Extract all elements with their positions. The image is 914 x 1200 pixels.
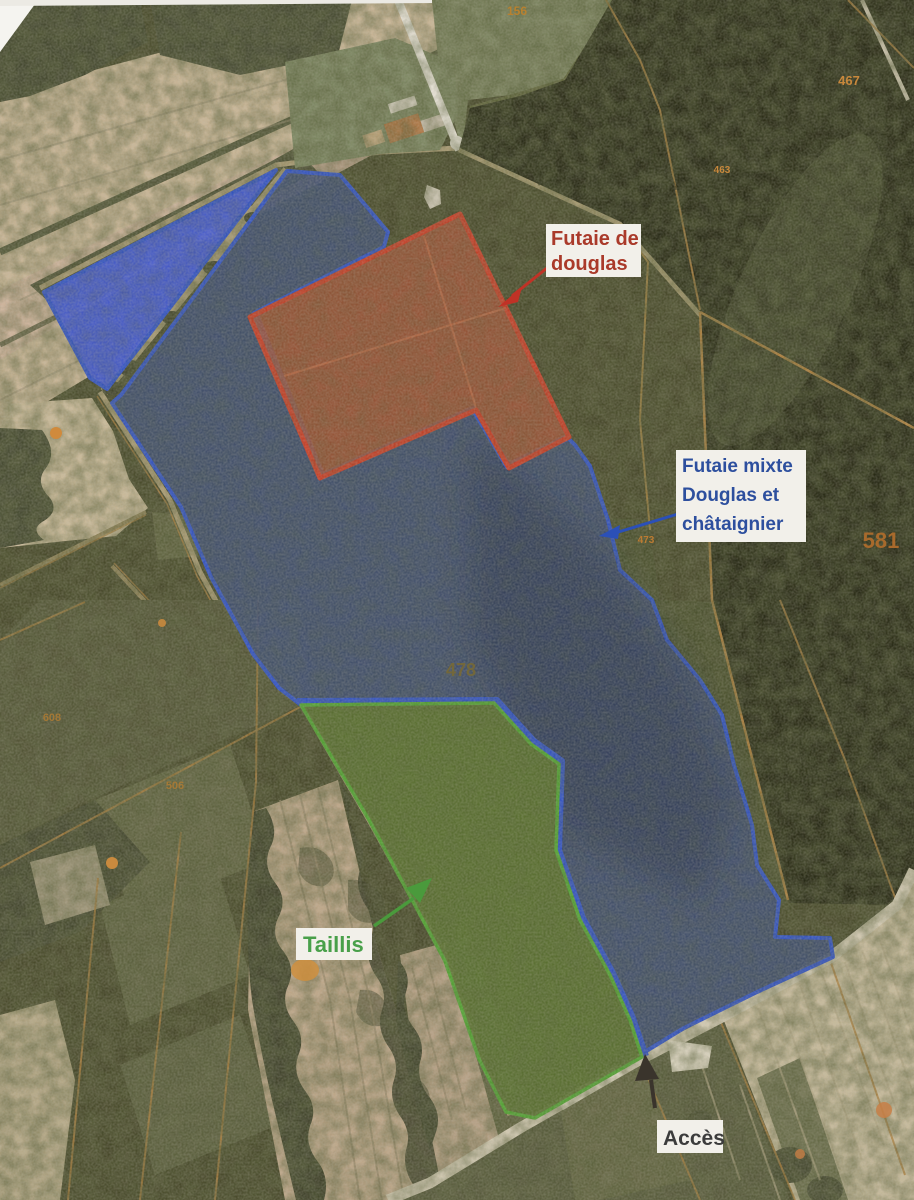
svg-text:Futaie de: Futaie de xyxy=(551,228,639,250)
svg-text:châtaignier: châtaignier xyxy=(682,514,784,535)
svg-text:581: 581 xyxy=(863,528,900,553)
svg-text:Douglas et: Douglas et xyxy=(682,485,780,506)
svg-text:478: 478 xyxy=(446,660,476,680)
svg-text:473: 473 xyxy=(638,535,655,546)
svg-text:608: 608 xyxy=(43,712,61,724)
svg-text:506: 506 xyxy=(166,780,184,792)
svg-text:douglas: douglas xyxy=(551,253,628,275)
svg-text:467: 467 xyxy=(838,73,860,88)
svg-text:156: 156 xyxy=(507,4,527,18)
svg-text:Accès: Accès xyxy=(663,1127,725,1150)
svg-text:463: 463 xyxy=(714,165,731,176)
svg-text:Futaie mixte: Futaie mixte xyxy=(682,456,793,477)
svg-text:Taillis: Taillis xyxy=(303,932,364,957)
